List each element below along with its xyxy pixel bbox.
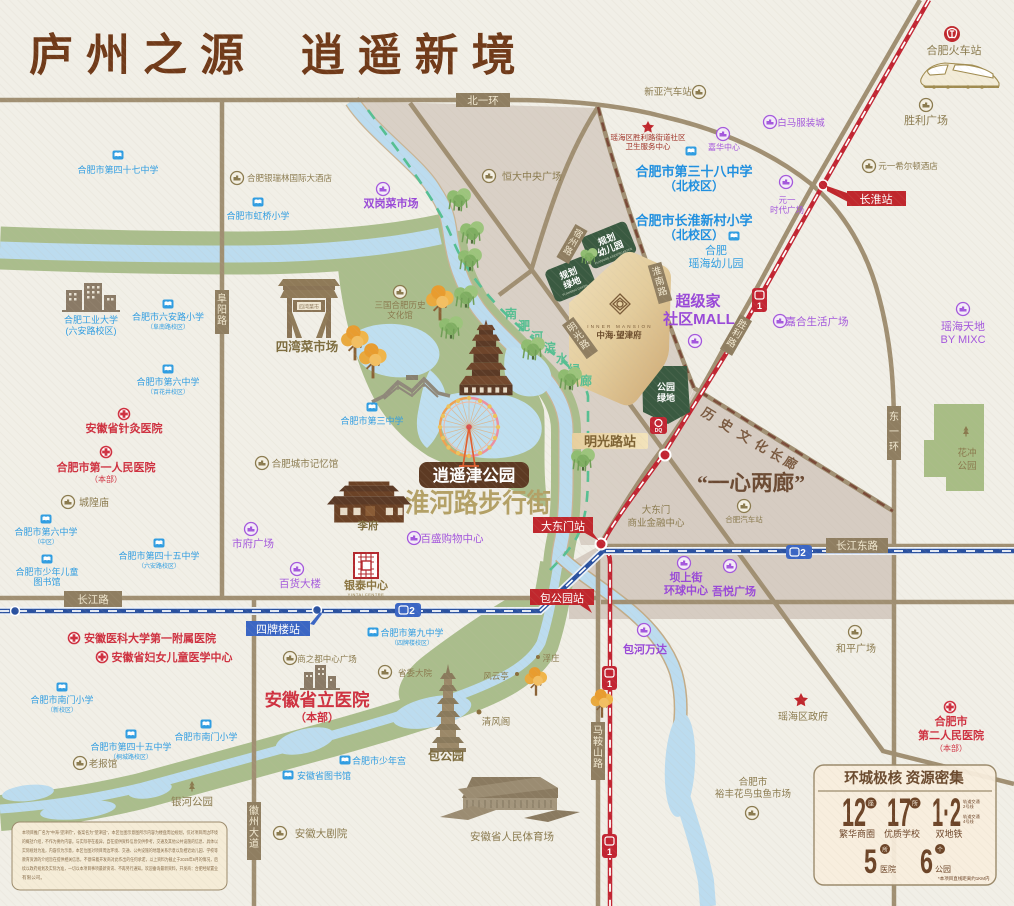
svg-text:银泰中心: 银泰中心 xyxy=(344,578,388,592)
svg-text:绿地: 绿地 xyxy=(657,392,675,403)
svg-text:安徽省图书馆: 安徽省图书馆 xyxy=(297,770,351,781)
svg-text:公园: 公园 xyxy=(957,461,976,472)
svg-text:合肥市第一人民医院: 合肥市第一人民医院 xyxy=(57,460,156,474)
svg-text:社区MALL: 社区MALL xyxy=(662,310,735,328)
svg-text:胜利广场: 胜利广场 xyxy=(904,113,948,127)
svg-text:淮河路步行街: 淮河路步行街 xyxy=(405,488,551,518)
svg-text:合肥市第六中学: 合肥市第六中学 xyxy=(136,376,199,387)
svg-text:繁华商圈: 繁华商圈 xyxy=(839,828,875,839)
svg-text:百货大楼: 百货大楼 xyxy=(279,577,321,590)
svg-text:5: 5 xyxy=(864,843,877,881)
svg-text:公园: 公园 xyxy=(657,382,675,392)
svg-text:市府广场: 市府广场 xyxy=(232,537,274,550)
svg-text:李府: 李府 xyxy=(357,519,379,532)
svg-text:合肥市长淮新村小学: 合肥市长淮新村小学 xyxy=(635,213,752,228)
svg-text:本项目推广名为"中海·望津府"，备案名为"望津园"，本区位图: 本项目推广名为"中海·望津府"，备案名为"望津园"，本区位图示意图所示内容为楼盘… xyxy=(22,829,218,836)
svg-text:长江路: 长江路 xyxy=(77,593,109,606)
svg-text:BY MIXC: BY MIXC xyxy=(940,334,985,346)
svg-text:南: 南 xyxy=(505,306,517,321)
svg-text:安徽医科大学第一附属医院: 安徽医科大学第一附属医院 xyxy=(84,631,216,645)
svg-text:四牌楼站: 四牌楼站 xyxy=(256,622,300,636)
svg-text:元一: 元一 xyxy=(778,195,796,205)
svg-text:东一环: 东一环 xyxy=(889,410,899,453)
svg-text:合肥: 合肥 xyxy=(705,243,727,257)
svg-text:风云亭: 风云亭 xyxy=(483,671,509,681)
svg-text:（六安路校区）: （六安路校区） xyxy=(138,562,180,570)
svg-text:商之都中心广场: 商之都中心广场 xyxy=(297,654,357,664)
svg-text:淝: 淝 xyxy=(518,319,530,333)
svg-text:1: 1 xyxy=(757,301,762,311)
svg-text:商业金融中心: 商业金融中心 xyxy=(627,517,685,529)
svg-text:嘉合生活广场: 嘉合生活广场 xyxy=(786,315,849,328)
svg-text:（本部）: （本部） xyxy=(295,710,339,724)
svg-text:元一希尔顿酒店: 元一希尔顿酒店 xyxy=(878,161,938,171)
svg-text:合肥汽车站: 合肥汽车站 xyxy=(725,514,763,524)
svg-text:合肥工业大学: 合肥工业大学 xyxy=(64,314,118,325)
svg-text:超级家: 超级家 xyxy=(674,292,720,310)
svg-text:合肥市第三中学: 合肥市第三中学 xyxy=(340,415,403,426)
svg-text:新亚汽车站: 新亚汽车站 xyxy=(644,86,692,98)
svg-text:合肥市虹桥小学: 合肥市虹桥小学 xyxy=(226,210,289,221)
svg-text:DQ: DQ xyxy=(655,428,663,434)
svg-text:教育资源的介绍旨在提供相关信息，不意味着开发商对此作出的任何: 教育资源的介绍旨在提供相关信息，不意味着开发商对此作出的任何承诺，以上资料为截止… xyxy=(22,856,218,863)
svg-text:4号线: 4号线 xyxy=(963,818,975,825)
svg-text:省委大院: 省委大院 xyxy=(398,668,433,678)
svg-text:1: 1 xyxy=(607,847,612,857)
svg-text:阜阳路: 阜阳路 xyxy=(217,292,227,327)
svg-text:包公园: 包公园 xyxy=(427,748,464,763)
svg-text:长江东路: 长江东路 xyxy=(836,539,878,552)
svg-text:安徽省妇女儿童医学中心: 安徽省妇女儿童医学中心 xyxy=(112,650,233,664)
svg-text:四湾菜市场: 四湾菜市场 xyxy=(276,339,339,354)
svg-text:合肥市南门小学: 合肥市南门小学 xyxy=(174,731,237,742)
svg-text:徽州大道: 徽州大道 xyxy=(249,804,259,850)
svg-text:“一心两廊”: “一心两廊” xyxy=(697,471,805,495)
svg-text:合肥银瑞林国际大酒店: 合肥银瑞林国际大酒店 xyxy=(247,173,333,183)
svg-text:所: 所 xyxy=(912,800,918,808)
svg-text:有限公司。: 有限公司。 xyxy=(22,874,45,881)
svg-text:（四牌楼校区）: （四牌楼校区） xyxy=(391,639,433,647)
svg-text:马鞍山路: 马鞍山路 xyxy=(593,725,603,770)
svg-text:城隍庙: 城隍庙 xyxy=(79,496,109,509)
svg-text:明光路站: 明光路站 xyxy=(584,434,636,449)
svg-text:和平广场: 和平广场 xyxy=(836,642,876,655)
svg-text:合肥市少年儿童: 合肥市少年儿童 xyxy=(15,566,78,577)
svg-text:2号线: 2号线 xyxy=(963,803,975,810)
svg-text:（北校区）: （北校区） xyxy=(664,178,724,193)
svg-text:文化馆: 文化馆 xyxy=(387,310,413,320)
svg-text:安徽省针灸医院: 安徽省针灸医院 xyxy=(86,421,163,435)
svg-text:公园: 公园 xyxy=(935,865,951,874)
svg-text:INNER MANSION: INNER MANSION xyxy=(587,324,653,329)
svg-text:长淮站: 长淮站 xyxy=(860,192,893,206)
svg-text:北一环: 北一环 xyxy=(467,95,499,107)
svg-text:环球中心: 环球中心 xyxy=(664,583,708,597)
svg-text:座: 座 xyxy=(868,800,874,808)
svg-text:医院: 医院 xyxy=(880,864,896,874)
svg-text:卫生服务中心: 卫生服务中心 xyxy=(626,141,671,151)
svg-text:个: 个 xyxy=(937,847,943,854)
svg-text:瑶海区胜利路街道社区: 瑶海区胜利路街道社区 xyxy=(611,132,686,142)
svg-text:合肥市第四十七中学: 合肥市第四十七中学 xyxy=(77,164,158,175)
svg-text:大东门站: 大东门站 xyxy=(541,519,585,533)
svg-text:合肥城市记忆馆: 合肥城市记忆馆 xyxy=(272,458,339,470)
svg-text:（阜南路校区）: （阜南路校区） xyxy=(147,323,189,331)
svg-text:瑶海区政府: 瑶海区政府 xyxy=(778,710,828,723)
svg-text:续以政府规划及实际为准，一切以本项目事项最新资讯、不再另行通: 续以政府规划及实际为准，一切以本项目事项最新资讯、不再另行通知。欢迎垂询最新资料… xyxy=(22,865,218,872)
svg-text:逍遥津公园: 逍遥津公园 xyxy=(433,465,516,485)
svg-text:百盛购物中心: 百盛购物中心 xyxy=(421,532,484,545)
svg-text:嘉华中心: 嘉华中心 xyxy=(708,142,740,152)
svg-text:（新校区）: （新校区） xyxy=(47,706,77,714)
svg-text:包河万达: 包河万达 xyxy=(622,642,667,656)
svg-text:双地铁: 双地铁 xyxy=(935,828,962,839)
svg-text:时代广场: 时代广场 xyxy=(770,205,804,215)
svg-text:*本项目直线距离约1KM内: *本项目直线距离约1KM内 xyxy=(938,875,990,882)
svg-text:银河公园: 银河公园 xyxy=(171,795,213,808)
svg-text:合肥市第九中学: 合肥市第九中学 xyxy=(380,627,443,638)
svg-text:双岗菜市场: 双岗菜市场 xyxy=(364,196,419,210)
svg-text:老报馆: 老报馆 xyxy=(89,758,118,770)
svg-text:6: 6 xyxy=(920,843,933,881)
svg-text:（本部）: （本部） xyxy=(90,474,122,484)
svg-text:所: 所 xyxy=(882,846,888,854)
svg-text:吾悦广场: 吾悦广场 xyxy=(712,584,756,598)
svg-text:实际规划为准，内容仅为示意，本区位图对项目周边环境、交通、公: 实际规划为准，内容仅为示意，本区位图对项目周边环境、交通、公共设施的地理关系示意… xyxy=(22,847,218,854)
svg-text:优质学校: 优质学校 xyxy=(884,828,920,839)
svg-text:环城极核 资源密集: 环城极核 资源密集 xyxy=(844,769,964,787)
svg-text:合肥市第六中学: 合肥市第六中学 xyxy=(14,526,77,537)
svg-text:四湾菜市: 四湾菜市 xyxy=(299,304,319,311)
svg-text:中海·望津府: 中海·望津府 xyxy=(596,330,642,340)
svg-text:裕丰花鸟虫鱼市场: 裕丰花鸟虫鱼市场 xyxy=(715,788,791,800)
svg-text:（本部）: （本部） xyxy=(935,743,967,753)
svg-text:(六安路校区): (六安路校区) xyxy=(66,325,117,336)
svg-text:第二人民医院: 第二人民医院 xyxy=(918,728,984,742)
svg-text:合肥市六安路小学: 合肥市六安路小学 xyxy=(132,311,204,322)
svg-text:安徽省立医院: 安徽省立医院 xyxy=(265,690,370,710)
svg-text:瑶海幼儿园: 瑶海幼儿园 xyxy=(689,256,744,270)
svg-text:合肥市少年宫: 合肥市少年宫 xyxy=(352,755,406,766)
svg-text:恒大中央广场: 恒大中央广场 xyxy=(502,170,562,183)
svg-text:花冲: 花冲 xyxy=(957,447,976,459)
svg-text:庐州之源 逍遥新境: 庐州之源 逍遥新境 xyxy=(29,31,529,80)
svg-text:（北校区）: （北校区） xyxy=(664,227,724,242)
svg-text:（百花井校区）: （百花井校区） xyxy=(147,388,189,396)
svg-text:合肥市南门小学: 合肥市南门小学 xyxy=(30,694,93,705)
svg-text:坝上街: 坝上街 xyxy=(670,570,703,584)
svg-text:包公园站: 包公园站 xyxy=(540,591,584,605)
svg-text:合肥市第四十五中学: 合肥市第四十五中学 xyxy=(118,550,199,561)
svg-text:1: 1 xyxy=(607,679,612,689)
svg-text:合肥火车站: 合肥火车站 xyxy=(927,43,982,57)
svg-text:清风阁: 清风阁 xyxy=(482,716,511,728)
svg-text:大东门: 大东门 xyxy=(642,504,671,516)
svg-text:合肥市第四十五中学: 合肥市第四十五中学 xyxy=(90,741,171,752)
svg-text:滨: 滨 xyxy=(544,340,556,355)
svg-text:2: 2 xyxy=(409,606,415,617)
svg-text:安徽省人民体育场: 安徽省人民体育场 xyxy=(470,830,554,843)
svg-text:的概括介绍，不作为要约内容。与实际存在差异，自在提供资料信息: 的概括介绍，不作为要约内容。与实际存在差异，自在提供资料信息仅供参考，交通及其他… xyxy=(22,838,218,845)
svg-text:合肥市: 合肥市 xyxy=(935,714,968,728)
svg-text:瑶海天地: 瑶海天地 xyxy=(941,319,985,333)
svg-text:三国合肥历史: 三国合肥历史 xyxy=(374,300,426,310)
svg-text:图书馆: 图书馆 xyxy=(33,576,60,587)
svg-text:（中区）: （中区） xyxy=(34,538,58,546)
svg-text:合肥市第三十八中学: 合肥市第三十八中学 xyxy=(635,164,752,179)
svg-text:安徽大剧院: 安徽大剧院 xyxy=(295,827,348,840)
svg-text:浮庄: 浮庄 xyxy=(542,653,560,663)
svg-text:白马服装城: 白马服装城 xyxy=(777,117,825,129)
svg-text:合肥市: 合肥市 xyxy=(739,776,768,788)
svg-text:2: 2 xyxy=(800,548,806,559)
svg-text:YINTAI CENTRE: YINTAI CENTRE xyxy=(348,592,385,597)
